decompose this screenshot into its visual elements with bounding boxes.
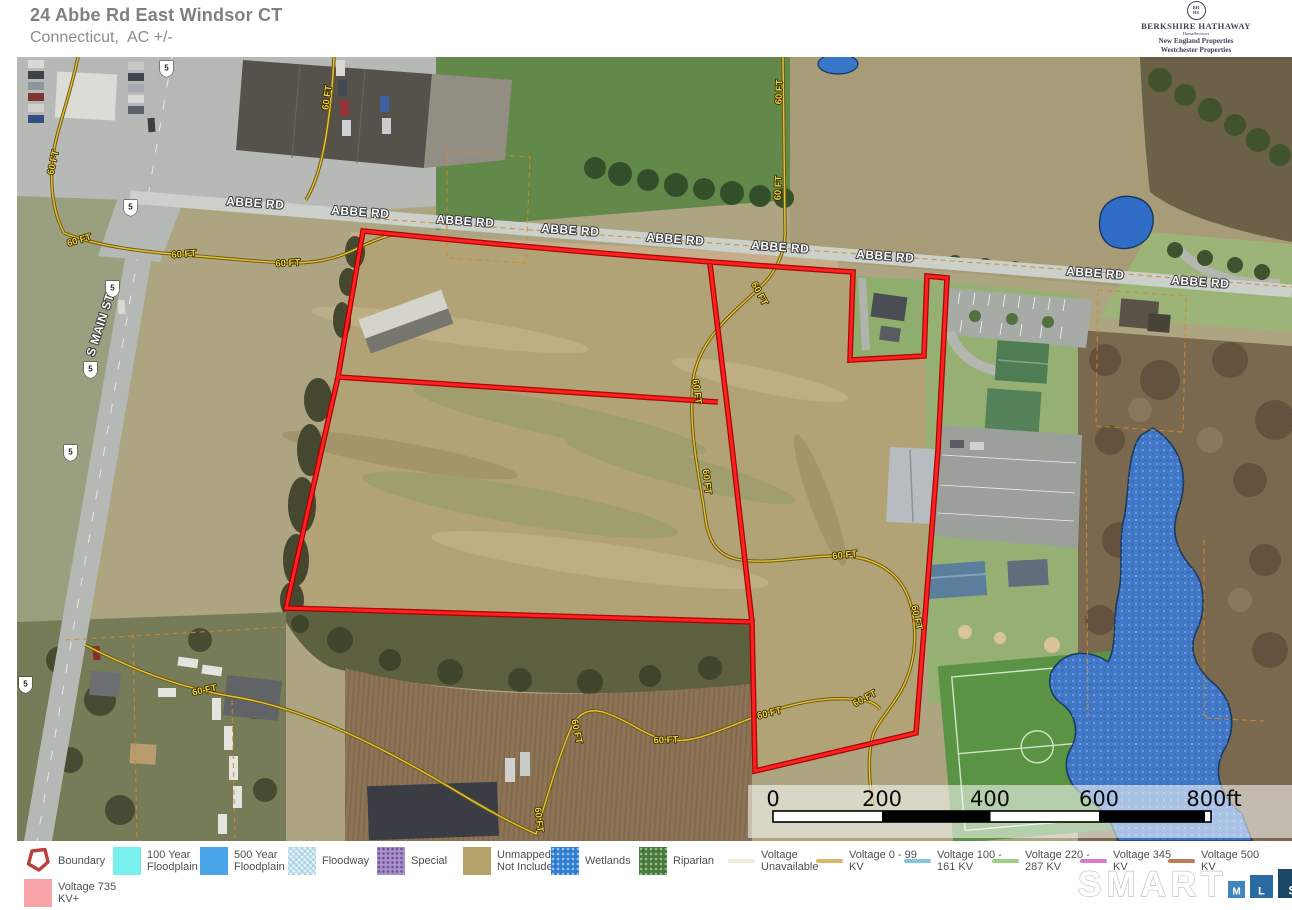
map-aerial: ABBE RD ABBE RD ABBE RD ABBE RD ABBE RD … bbox=[17, 57, 1292, 841]
scale-tick: 200 bbox=[862, 787, 902, 811]
brand-logo: BH HS BERKSHIRE HATHAWAY HomeServices Ne… bbox=[1133, 1, 1259, 54]
unmapped-swatch bbox=[463, 847, 491, 875]
bhhs-monogram-icon: BH HS bbox=[1187, 1, 1206, 20]
mls-letter-m: M bbox=[1232, 887, 1240, 898]
route-shield-label: 5 bbox=[68, 448, 73, 457]
legend-item-unmapped: Unmapped/ Not Included bbox=[463, 847, 559, 875]
scale-tick: 400 bbox=[970, 787, 1010, 811]
voltage-220-287-swatch bbox=[991, 847, 1019, 875]
route-shield-label: 5 bbox=[164, 64, 169, 73]
floodway-swatch bbox=[288, 847, 316, 875]
page-subtitle: Connecticut, AC +/- bbox=[30, 29, 173, 47]
route-shield-label: 5 bbox=[23, 680, 28, 689]
legend-item-special: Special bbox=[377, 847, 447, 875]
route-shield-label: 5 bbox=[88, 365, 93, 374]
mls-letter-l: L bbox=[1258, 886, 1265, 898]
floodplain-100-swatch bbox=[113, 847, 141, 875]
route-shield-label: 5 bbox=[128, 203, 133, 212]
scale-bar: 0 200 400 600 800ft bbox=[748, 785, 1292, 838]
voltage-100-161-swatch bbox=[903, 847, 931, 875]
brand-name: BERKSHIRE HATHAWAY bbox=[1133, 21, 1259, 31]
voltage-735-swatch bbox=[24, 879, 52, 907]
boundary-swatch-icon bbox=[24, 847, 52, 875]
legend-item-riparian: Riparian bbox=[639, 847, 714, 875]
special-swatch bbox=[377, 847, 405, 875]
easement-label: 60 FT bbox=[171, 248, 197, 261]
legend-label: Boundary bbox=[58, 855, 105, 868]
legend-item-100yr: 100 Year Floodplain bbox=[113, 847, 198, 875]
mls-letter-s: S bbox=[1288, 884, 1292, 898]
scale-tick: 600 bbox=[1079, 787, 1119, 811]
voltage-0-99-swatch bbox=[815, 847, 843, 875]
smart-wordmark: SMART bbox=[1078, 865, 1227, 904]
brand-homeservices: HomeServices bbox=[1133, 31, 1259, 36]
scale-tick: 0 bbox=[766, 787, 779, 811]
legend-item-voltage-220-287: Voltage 220 - 287 KV bbox=[991, 847, 1090, 875]
bhhs-monogram-bottom: HS bbox=[1193, 11, 1199, 16]
legend-label: Unmapped/ Not Included bbox=[497, 849, 559, 874]
easement-label: 60 FT bbox=[275, 257, 301, 269]
map-canvas: ABBE RD ABBE RD ABBE RD ABBE RD ABBE RD … bbox=[17, 57, 1292, 841]
wetlands-swatch bbox=[551, 847, 579, 875]
page: 24 Abbe Rd East Windsor CT Connecticut, … bbox=[0, 0, 1292, 910]
legend-item-wetlands: Wetlands bbox=[551, 847, 631, 875]
route-shield-label: 5 bbox=[110, 284, 115, 293]
page-title: 24 Abbe Rd East Windsor CT bbox=[30, 5, 282, 26]
wetland-small bbox=[818, 57, 858, 74]
legend-item-voltage-0-99: Voltage 0 - 99 KV bbox=[815, 847, 917, 875]
pond bbox=[1100, 196, 1154, 248]
legend-label: 100 Year Floodplain bbox=[147, 849, 198, 874]
legend-item-500yr: 500 Year Floodplain bbox=[200, 847, 285, 875]
legend-label: 500 Year Floodplain bbox=[234, 849, 285, 874]
brand-line1: New England Properties bbox=[1133, 37, 1259, 45]
legend-item-voltage-unavailable: Voltage Unavailable bbox=[727, 847, 818, 875]
legend-item-floodway: Floodway bbox=[288, 847, 369, 875]
easement-label: 60 FT bbox=[773, 175, 785, 200]
legend-label: Riparian bbox=[673, 855, 714, 868]
legend-label: Special bbox=[411, 855, 447, 868]
legend-label: Voltage Unavailable bbox=[761, 849, 818, 874]
riparian-swatch bbox=[639, 847, 667, 875]
smartmls-logo: SMART M L S bbox=[1078, 860, 1292, 910]
scale-tick: 800ft bbox=[1186, 787, 1241, 811]
brand-line2: Westchester Properties bbox=[1133, 46, 1259, 54]
legend-label: Floodway bbox=[322, 855, 369, 868]
legend-label: Voltage 735 KV+ bbox=[58, 881, 116, 906]
legend-item-voltage-735: Voltage 735 KV+ bbox=[24, 879, 116, 907]
easement-label: 60 FT bbox=[653, 735, 678, 747]
floodplain-500-swatch bbox=[200, 847, 228, 875]
legend-label: Wetlands bbox=[585, 855, 631, 868]
easement-label: 60 FT bbox=[774, 79, 786, 104]
voltage-unavailable-swatch bbox=[727, 847, 755, 875]
legend-item-boundary: Boundary bbox=[24, 847, 105, 875]
legend-item-voltage-100-161: Voltage 100 - 161 KV bbox=[903, 847, 1002, 875]
